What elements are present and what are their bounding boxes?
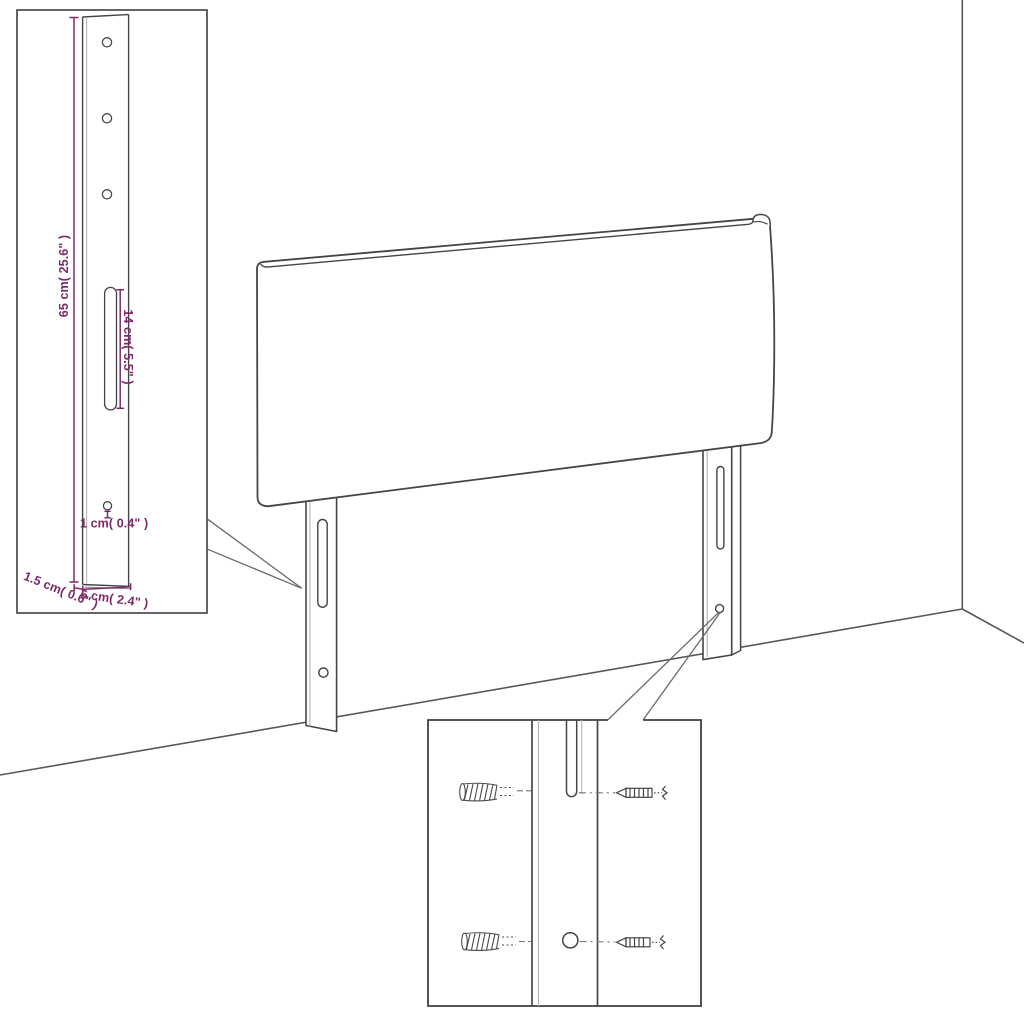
- wall-floor-right-line: [962, 609, 1024, 643]
- label-hole-diameter: 1 cm( 0.4" ): [80, 517, 148, 531]
- mount-callout-line-right: [643, 612, 720, 720]
- bracket-detail-inset: 65 cm( 25.6" ) 14 cm( 5.5" ) 1 cm( 0.4" …: [17, 10, 207, 613]
- bracket-callout-line-upper: [208, 519, 302, 588]
- right-leg: [703, 443, 741, 659]
- right-leg-side-face: [732, 443, 741, 655]
- left-leg-hole: [319, 668, 328, 677]
- label-slot-length: 14 cm( 5.5" ): [121, 309, 135, 384]
- bracket-callout-lines: [208, 519, 302, 588]
- right-leg-hole: [716, 605, 724, 613]
- left-leg-slot: [318, 520, 327, 608]
- headboard-panel: [257, 214, 774, 506]
- diagram-svg: 65 cm( 25.6" ) 14 cm( 5.5" ) 1 cm( 0.4" …: [0, 0, 1024, 1024]
- label-height: 65 cm( 25.6" ): [57, 235, 71, 317]
- mounting-inset-border: [428, 720, 701, 1006]
- mount-callout-line-left: [608, 612, 719, 720]
- bracket-callout-line-lower: [208, 549, 302, 588]
- assembly-diagram: 65 cm( 25.6" ) 14 cm( 5.5" ) 1 cm( 0.4" …: [0, 0, 1024, 1024]
- left-leg: [306, 494, 337, 732]
- mounting-detail-inset: [428, 720, 701, 1006]
- right-leg-slot: [717, 467, 724, 550]
